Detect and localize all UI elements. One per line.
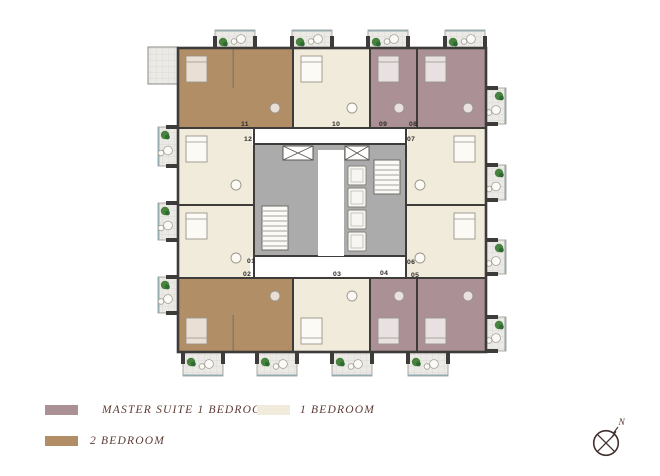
bed-icon xyxy=(186,56,207,82)
plant-icon xyxy=(165,211,170,216)
legend-label-one-bedroom: 1 BEDROOM xyxy=(300,404,375,416)
plant-icon xyxy=(499,96,504,101)
plant-icon xyxy=(165,285,170,290)
plant-icon xyxy=(499,173,504,178)
plant-icon xyxy=(453,42,458,47)
balcony xyxy=(330,350,374,376)
bed-icon xyxy=(378,56,399,82)
page: { "palette": { "master_suite": "#ab9195"… xyxy=(0,0,660,476)
plant-icon xyxy=(376,42,381,47)
compass-north-label: N xyxy=(618,418,626,428)
bed-icon xyxy=(425,56,446,82)
balcony xyxy=(406,350,450,376)
plant-icon xyxy=(191,362,196,367)
bed-icon xyxy=(378,318,399,344)
legend-item-one-bedroom: 1 BEDROOM xyxy=(257,403,375,417)
plant-icon xyxy=(265,362,270,367)
legend-label-two-bedroom: 2 BEDROOM xyxy=(90,435,165,447)
table-icon xyxy=(231,253,241,263)
table-icon xyxy=(463,291,473,301)
bed-icon xyxy=(454,136,475,162)
table-icon xyxy=(270,103,280,113)
compass: N xyxy=(582,412,642,464)
stairs-icon xyxy=(374,160,400,194)
bed-icon xyxy=(454,213,475,239)
stairs-icon xyxy=(262,206,288,250)
table-icon xyxy=(231,180,241,190)
legend-swatch-one-bedroom xyxy=(257,405,290,415)
floor-plan: 010203040506070809101112 xyxy=(0,0,660,400)
plant-icon xyxy=(165,135,170,140)
terrace xyxy=(148,47,178,84)
legend-label-master-suite: MASTER SUITE 1 BEDROOM xyxy=(102,404,272,416)
bed-icon xyxy=(301,56,322,82)
balcony xyxy=(255,350,299,376)
plant-icon xyxy=(340,362,345,367)
lift-lobby xyxy=(318,150,344,256)
legend-swatch-master-suite xyxy=(45,405,78,415)
plant-icon xyxy=(499,325,504,330)
plant-icon xyxy=(416,362,421,367)
legend-item-master-suite: MASTER SUITE 1 BEDROOM xyxy=(45,403,272,417)
plant-icon xyxy=(300,42,305,47)
corridor-bottom xyxy=(250,257,406,278)
table-icon xyxy=(347,103,357,113)
bed-icon xyxy=(186,213,207,239)
table-icon xyxy=(270,291,280,301)
table-icon xyxy=(415,180,425,190)
core xyxy=(254,144,406,256)
elevator-icon xyxy=(345,146,369,160)
table-icon xyxy=(415,253,425,263)
table-icon xyxy=(463,103,473,113)
legend-item-two-bedroom: 2 BEDROOM xyxy=(45,434,165,448)
table-icon xyxy=(347,291,357,301)
elevator-icon xyxy=(283,146,313,160)
bed-icon xyxy=(425,318,446,344)
bed-icon xyxy=(301,318,322,344)
bed-icon xyxy=(186,136,207,162)
plant-icon xyxy=(499,248,504,253)
legend-swatch-two-bedroom xyxy=(45,436,78,446)
bed-icon xyxy=(186,318,207,344)
corridor-top xyxy=(252,129,408,145)
plant-icon xyxy=(223,42,228,47)
table-icon xyxy=(394,291,404,301)
table-icon xyxy=(394,103,404,113)
balcony xyxy=(181,350,225,376)
